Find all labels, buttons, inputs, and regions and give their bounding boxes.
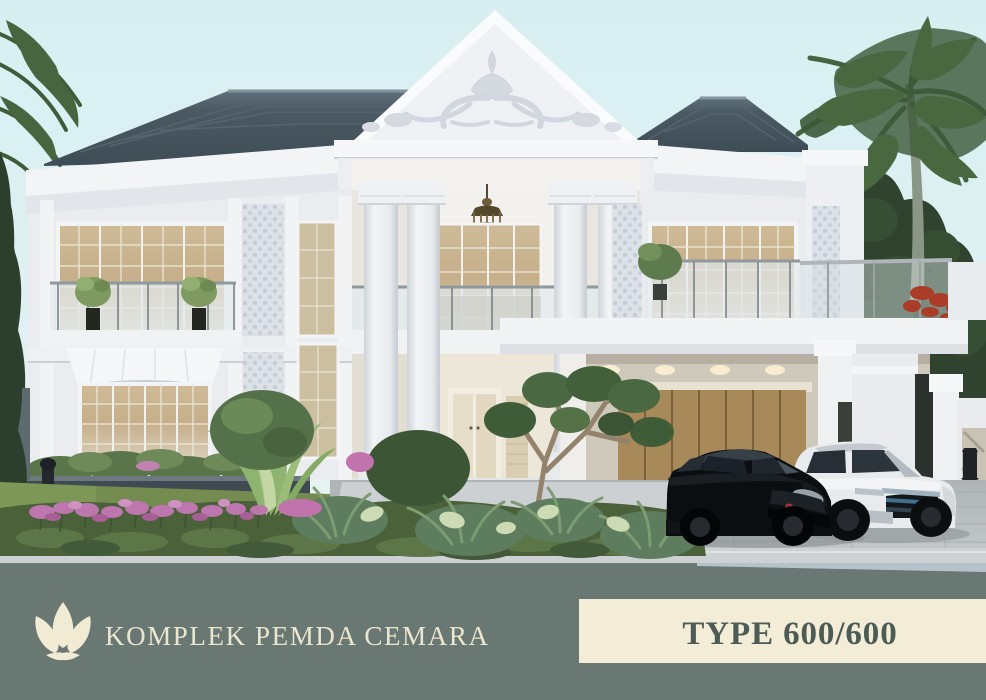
svg-text:TYPE 600/600: TYPE 600/600: [682, 616, 897, 652]
svg-text:KOMPLEK PEMDA CEMARA: KOMPLEK PEMDA CEMARA: [105, 621, 490, 651]
